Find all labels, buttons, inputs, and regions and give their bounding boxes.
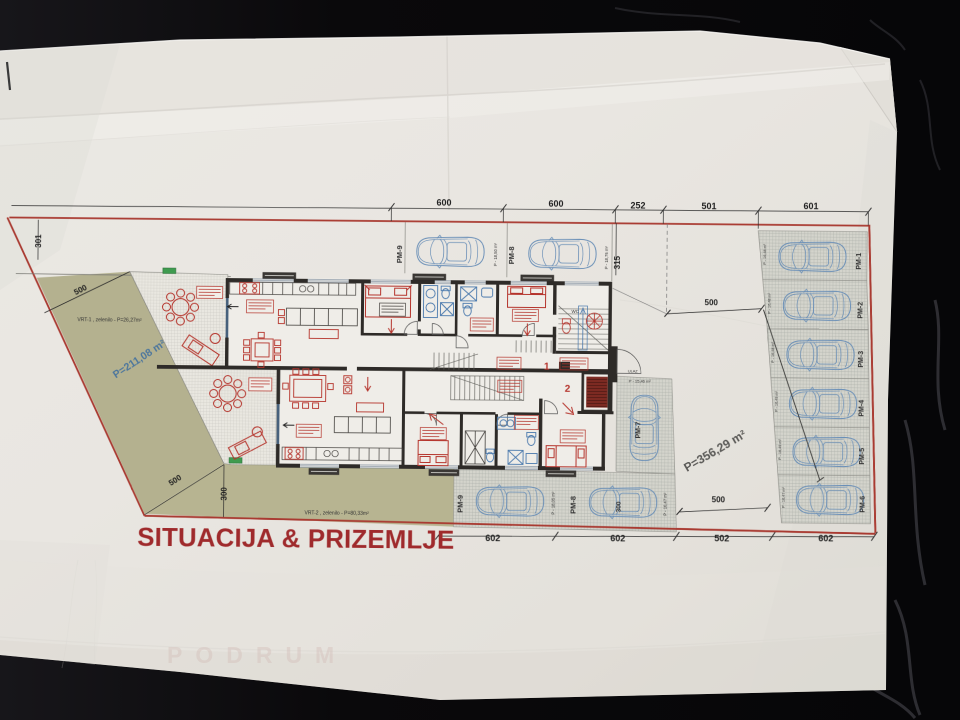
svg-text:301: 301 — [34, 234, 43, 248]
svg-text:P - 16,47 m²: P - 16,47 m² — [782, 486, 786, 508]
svg-text:PM-9: PM-9 — [456, 495, 465, 513]
svg-text:VRT-1 , zelenilo - P=26,27m²: VRT-1 , zelenilo - P=26,27m² — [77, 317, 142, 324]
svg-text:602: 602 — [485, 533, 500, 543]
svg-text:252: 252 — [630, 200, 645, 210]
svg-text:PM-7: PM-7 — [635, 422, 642, 439]
svg-text:ULAZ: ULAZ — [628, 369, 638, 373]
svg-text:600: 600 — [436, 198, 451, 208]
svg-text:602: 602 — [610, 533, 625, 543]
svg-text:P - 16,49 m²: P - 16,49 m² — [778, 438, 782, 460]
svg-text:P - 18,05 m²: P - 18,05 m² — [551, 491, 556, 515]
svg-text:2: 2 — [565, 384, 571, 395]
svg-text:SITUACIJA & PRIZEMLJE: SITUACIJA & PRIZEMLJE — [137, 524, 454, 555]
svg-text:PM-6: PM-6 — [860, 496, 867, 513]
svg-text:PM-8: PM-8 — [507, 246, 516, 264]
svg-text:600: 600 — [548, 199, 563, 209]
svg-text:500: 500 — [705, 298, 719, 307]
svg-text:PM-5: PM-5 — [859, 448, 866, 465]
svg-text:PODRUM: PODRUM — [167, 642, 347, 668]
svg-text:300: 300 — [220, 487, 229, 501]
svg-text:PM-8: PM-8 — [569, 496, 578, 514]
svg-text:WC: WC — [571, 309, 579, 314]
svg-text:1: 1 — [544, 362, 550, 373]
svg-text:PM-4: PM-4 — [858, 400, 865, 417]
svg-text:VRT-2 , zelenilo - P=80,33m²: VRT-2 , zelenilo - P=80,33m² — [304, 510, 369, 517]
svg-text:P - 18,50 m²: P - 18,50 m² — [493, 243, 498, 267]
svg-text:PM-3: PM-3 — [858, 351, 865, 368]
svg-text:P - 15,46 m²: P - 15,46 m² — [629, 378, 652, 383]
svg-text:P - 16,48 m²: P - 16,48 m² — [767, 292, 771, 314]
svg-text:PM-9: PM-9 — [395, 245, 404, 263]
svg-text:300: 300 — [616, 501, 623, 512]
svg-text:P - 16,48 m²: P - 16,48 m² — [763, 243, 767, 265]
svg-text:501: 501 — [701, 201, 716, 211]
svg-text:P - 16,49 m²: P - 16,49 m² — [775, 390, 779, 412]
svg-text:602: 602 — [818, 533, 833, 543]
svg-text:315: 315 — [613, 255, 622, 269]
svg-text:P - 16,47 m²: P - 16,47 m² — [663, 492, 668, 516]
svg-text:PM-2: PM-2 — [857, 302, 864, 319]
svg-text:500: 500 — [712, 495, 726, 504]
svg-text:502: 502 — [714, 533, 729, 543]
svg-text:601: 601 — [803, 201, 818, 211]
svg-text:P - 18,76 m²: P - 18,76 m² — [604, 246, 609, 270]
svg-text:PM-1: PM-1 — [856, 253, 863, 270]
